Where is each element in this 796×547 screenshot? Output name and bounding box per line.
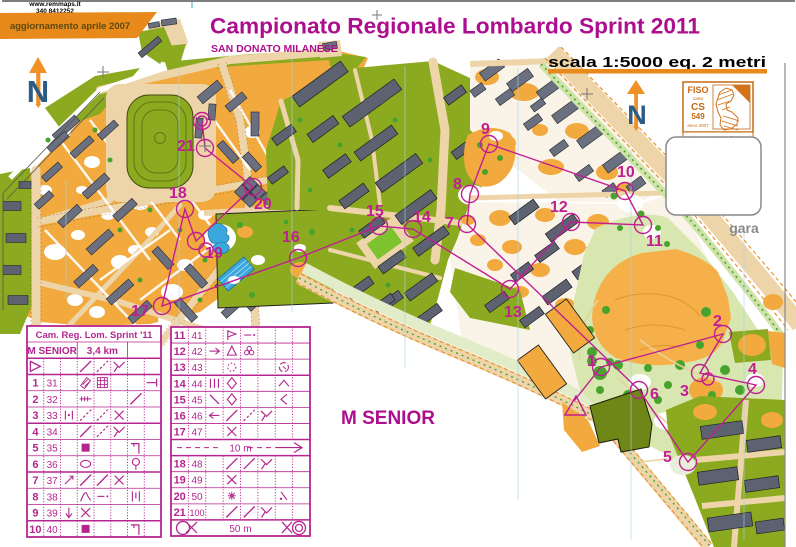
svg-text:16: 16 [174,410,186,422]
svg-text:17: 17 [174,427,186,439]
svg-text:10 m: 10 m [229,444,251,455]
svg-text:37: 37 [47,476,59,487]
svg-text:15: 15 [366,203,384,220]
svg-text:19: 19 [205,245,223,262]
svg-text:www.remmaps.it: www.remmaps.it [28,1,81,8]
svg-text:8: 8 [453,176,462,193]
svg-text:14: 14 [174,378,187,390]
svg-text:46: 46 [192,411,204,422]
svg-text:carta: carta [693,96,704,101]
svg-text:43: 43 [192,363,204,374]
svg-text:SAN DONATO MILANESE: SAN DONATO MILANESE [211,43,338,55]
svg-text:M SENIOR: M SENIOR [341,408,435,429]
svg-text:42: 42 [192,347,204,358]
svg-text:scala 1:5000 eq. 2 metri: scala 1:5000 eq. 2 metri [548,55,766,71]
svg-text:44: 44 [192,379,204,390]
svg-text:Campionato Regionale Lombardo: Campionato Regionale Lombardo Sprint 201… [210,14,700,39]
svg-text:4: 4 [748,361,757,378]
svg-text:38: 38 [47,492,59,503]
svg-text:9: 9 [481,121,490,138]
svg-text:1: 1 [587,353,596,370]
svg-text:gara: gara [729,220,759,236]
svg-text:49: 49 [192,476,204,487]
svg-text:18: 18 [174,459,186,471]
svg-text:20: 20 [174,491,186,503]
svg-text:100: 100 [190,508,205,518]
svg-text:21: 21 [174,507,186,519]
svg-text:N: N [27,74,49,109]
svg-text:1: 1 [32,378,38,390]
svg-text:2: 2 [713,313,722,330]
svg-text:3: 3 [680,383,689,400]
svg-text:15: 15 [174,394,186,406]
svg-text:6: 6 [32,459,38,471]
svg-text:12: 12 [550,199,568,216]
svg-text:2: 2 [32,394,38,406]
svg-text:7: 7 [32,475,38,487]
svg-text:N: N [627,100,647,130]
svg-text:34: 34 [47,427,59,438]
svg-text:3: 3 [32,410,38,422]
svg-text:FISO: FISO [687,85,708,95]
svg-text:35: 35 [47,444,59,455]
svg-text:Cam. Reg. Lom. Sprint '11: Cam. Reg. Lom. Sprint '11 [36,330,154,341]
svg-text:11: 11 [646,233,663,250]
svg-text:14: 14 [413,209,431,226]
svg-text:39: 39 [47,509,59,520]
svg-text:549: 549 [691,112,705,121]
svg-text:17: 17 [131,303,149,320]
svg-text:45: 45 [192,395,204,406]
svg-text:50 m: 50 m [229,524,251,535]
svg-text:10: 10 [617,164,635,181]
svg-text:47: 47 [192,428,204,439]
svg-text:13: 13 [504,304,522,321]
svg-text:11: 11 [174,330,186,342]
svg-text:M SENIOR: M SENIOR [27,346,77,357]
svg-text:50: 50 [192,492,204,503]
svg-text:7: 7 [445,215,454,232]
svg-text:5: 5 [663,449,672,466]
svg-text:16: 16 [282,229,300,246]
svg-text:18: 18 [169,185,187,202]
svg-text:9: 9 [32,508,38,520]
svg-text:4: 4 [32,426,39,438]
svg-text:aggiornamento aprile 2007: aggiornamento aprile 2007 [10,21,130,32]
svg-text:32: 32 [47,395,59,406]
svg-text:3,4 km: 3,4 km [87,346,118,357]
svg-text:33: 33 [47,411,59,422]
svg-text:13: 13 [174,362,186,374]
svg-text:41: 41 [192,331,204,342]
svg-text:31: 31 [47,379,59,390]
svg-text:36: 36 [47,460,59,471]
svg-text:anno 2007: anno 2007 [687,123,709,128]
svg-text:12: 12 [174,346,186,358]
svg-text:8: 8 [32,491,38,503]
svg-text:20: 20 [254,196,272,213]
svg-text:6: 6 [650,386,659,403]
svg-text:21: 21 [177,138,195,155]
svg-text:19: 19 [174,475,186,487]
svg-text:40: 40 [47,525,59,536]
svg-text:10: 10 [29,524,41,536]
svg-text:48: 48 [192,460,204,471]
svg-text:5: 5 [32,443,38,455]
